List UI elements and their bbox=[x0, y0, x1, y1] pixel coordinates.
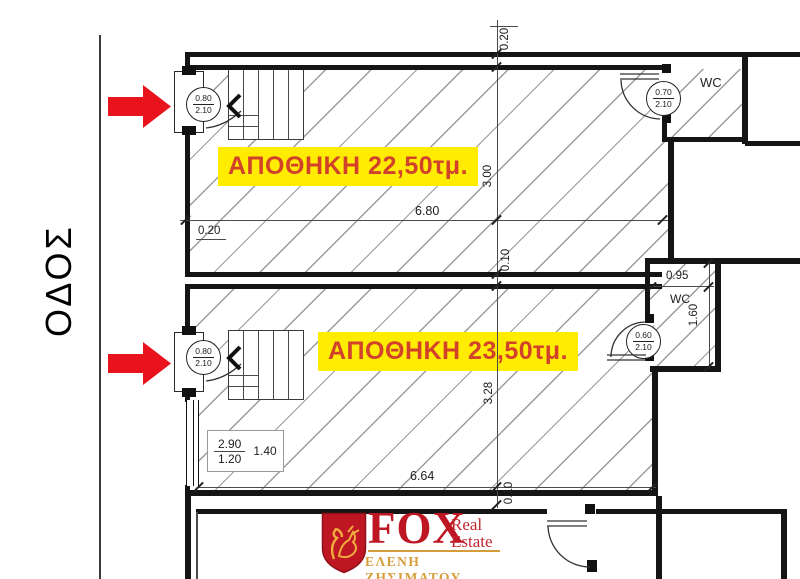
wall-strip-left bbox=[185, 496, 191, 579]
window-sill-value: 1.20 bbox=[218, 452, 241, 466]
wall-unit1-right bbox=[668, 140, 674, 262]
wall-top-inner bbox=[185, 65, 668, 70]
wc2-door-size-circle: 0.60 2.10 bbox=[626, 324, 661, 359]
wall-right-of-wc1 bbox=[745, 141, 800, 146]
wall-wc1-bottom bbox=[662, 137, 748, 142]
dim-line-095 bbox=[650, 286, 714, 287]
unit1-door-size-circle: 0.80 2.10 bbox=[186, 87, 221, 122]
wall-dividing-lower bbox=[185, 284, 662, 289]
wall-strip-left-inner bbox=[196, 512, 198, 579]
dim-depth-unit2-label: 3.28 bbox=[483, 376, 495, 410]
wall-unit2-right bbox=[652, 366, 658, 494]
wall-unit2-bottom bbox=[185, 490, 658, 496]
dim-centerline bbox=[497, 20, 498, 508]
logo-gold-rule bbox=[368, 550, 500, 552]
dim-line-680 bbox=[180, 220, 668, 221]
window-height-value: 1.40 bbox=[253, 444, 276, 458]
street-label: ΟΔΟΣ bbox=[38, 225, 78, 337]
window-width-value: 2.90 bbox=[214, 437, 245, 452]
wc1-door-jamb-top bbox=[662, 64, 671, 73]
dim-wall-left-label: 0.20 bbox=[198, 225, 220, 237]
unit1-staircase bbox=[228, 69, 304, 140]
wall-wc1-right bbox=[742, 52, 748, 144]
floor-plan: ΟΔΟΣ bbox=[0, 0, 800, 579]
logo-agent-name: ΕΛΕΝΗ ΖΗΣΙΜΑΤΟΥ bbox=[365, 554, 508, 579]
wall-unit1-left-lower bbox=[185, 131, 190, 277]
unit2-entrance-jamb-bottom bbox=[182, 388, 196, 397]
wc2-label: WC bbox=[670, 292, 690, 306]
wc2-door-jamb-top bbox=[645, 314, 654, 323]
wall-strip-divider bbox=[656, 496, 662, 579]
wall-wc2-bottom bbox=[650, 366, 721, 372]
strip-door-jamb-top bbox=[585, 504, 595, 514]
dim-wc2-width-label: 0.95 bbox=[666, 270, 688, 282]
dim-line-160 bbox=[709, 262, 710, 368]
entrance-arrow-bottom-icon bbox=[108, 340, 172, 387]
strip-door-jamb-bottom bbox=[587, 560, 597, 572]
unit2-area-label: ΑΠΟΘΗΚΗ 23,50τμ. bbox=[318, 332, 578, 371]
fox-real-estate-logo: FOX Real Estate ΕΛΕΝΗ ΖΗΣΙΜΑΤΟΥ bbox=[318, 505, 508, 575]
dim-line-664 bbox=[197, 487, 656, 488]
unit2-window-dimension-box: 2.90 1.20 1.40 bbox=[207, 430, 284, 472]
wc1-door-size-circle: 0.70 2.10 bbox=[646, 81, 681, 116]
dim-width-unit1-label: 6.80 bbox=[415, 204, 439, 218]
unit1-entrance-jamb-bottom bbox=[182, 126, 196, 135]
unit2-staircase bbox=[228, 330, 304, 400]
dim-wc2-depth-label: 1.60 bbox=[688, 298, 700, 332]
logo-line2-text: Estate bbox=[451, 532, 493, 552]
dim-width-unit2-label: 6.64 bbox=[410, 469, 434, 483]
wall-dividing-upper bbox=[185, 272, 662, 277]
unit1-entrance-jamb-top bbox=[182, 66, 196, 75]
wall-wc2-right bbox=[715, 258, 721, 372]
dim-020-underline bbox=[196, 239, 226, 240]
street-boundary-line bbox=[99, 35, 101, 579]
wc1-label: WC bbox=[700, 75, 722, 90]
unit1-area-label: ΑΠΟΘΗΚΗ 22,50τμ. bbox=[218, 147, 478, 186]
fox-shield-icon bbox=[321, 512, 367, 574]
dim-depth-unit1-label: 3.00 bbox=[482, 159, 494, 193]
wall-wc2-top bbox=[645, 258, 800, 264]
entrance-arrow-top-icon bbox=[108, 83, 172, 130]
dim-wall-top-label: 0.20 bbox=[499, 22, 511, 56]
unit2-entrance-jamb-top bbox=[182, 326, 196, 335]
wall-strip-top-b bbox=[596, 509, 660, 514]
unit2-door-size-circle: 0.80 2.10 bbox=[186, 340, 221, 375]
wall-strip-top-c bbox=[660, 509, 783, 514]
unit2-window bbox=[186, 400, 199, 486]
wall-strip-right bbox=[781, 509, 787, 579]
dim-wall-mid-label: 0.10 bbox=[500, 243, 512, 277]
